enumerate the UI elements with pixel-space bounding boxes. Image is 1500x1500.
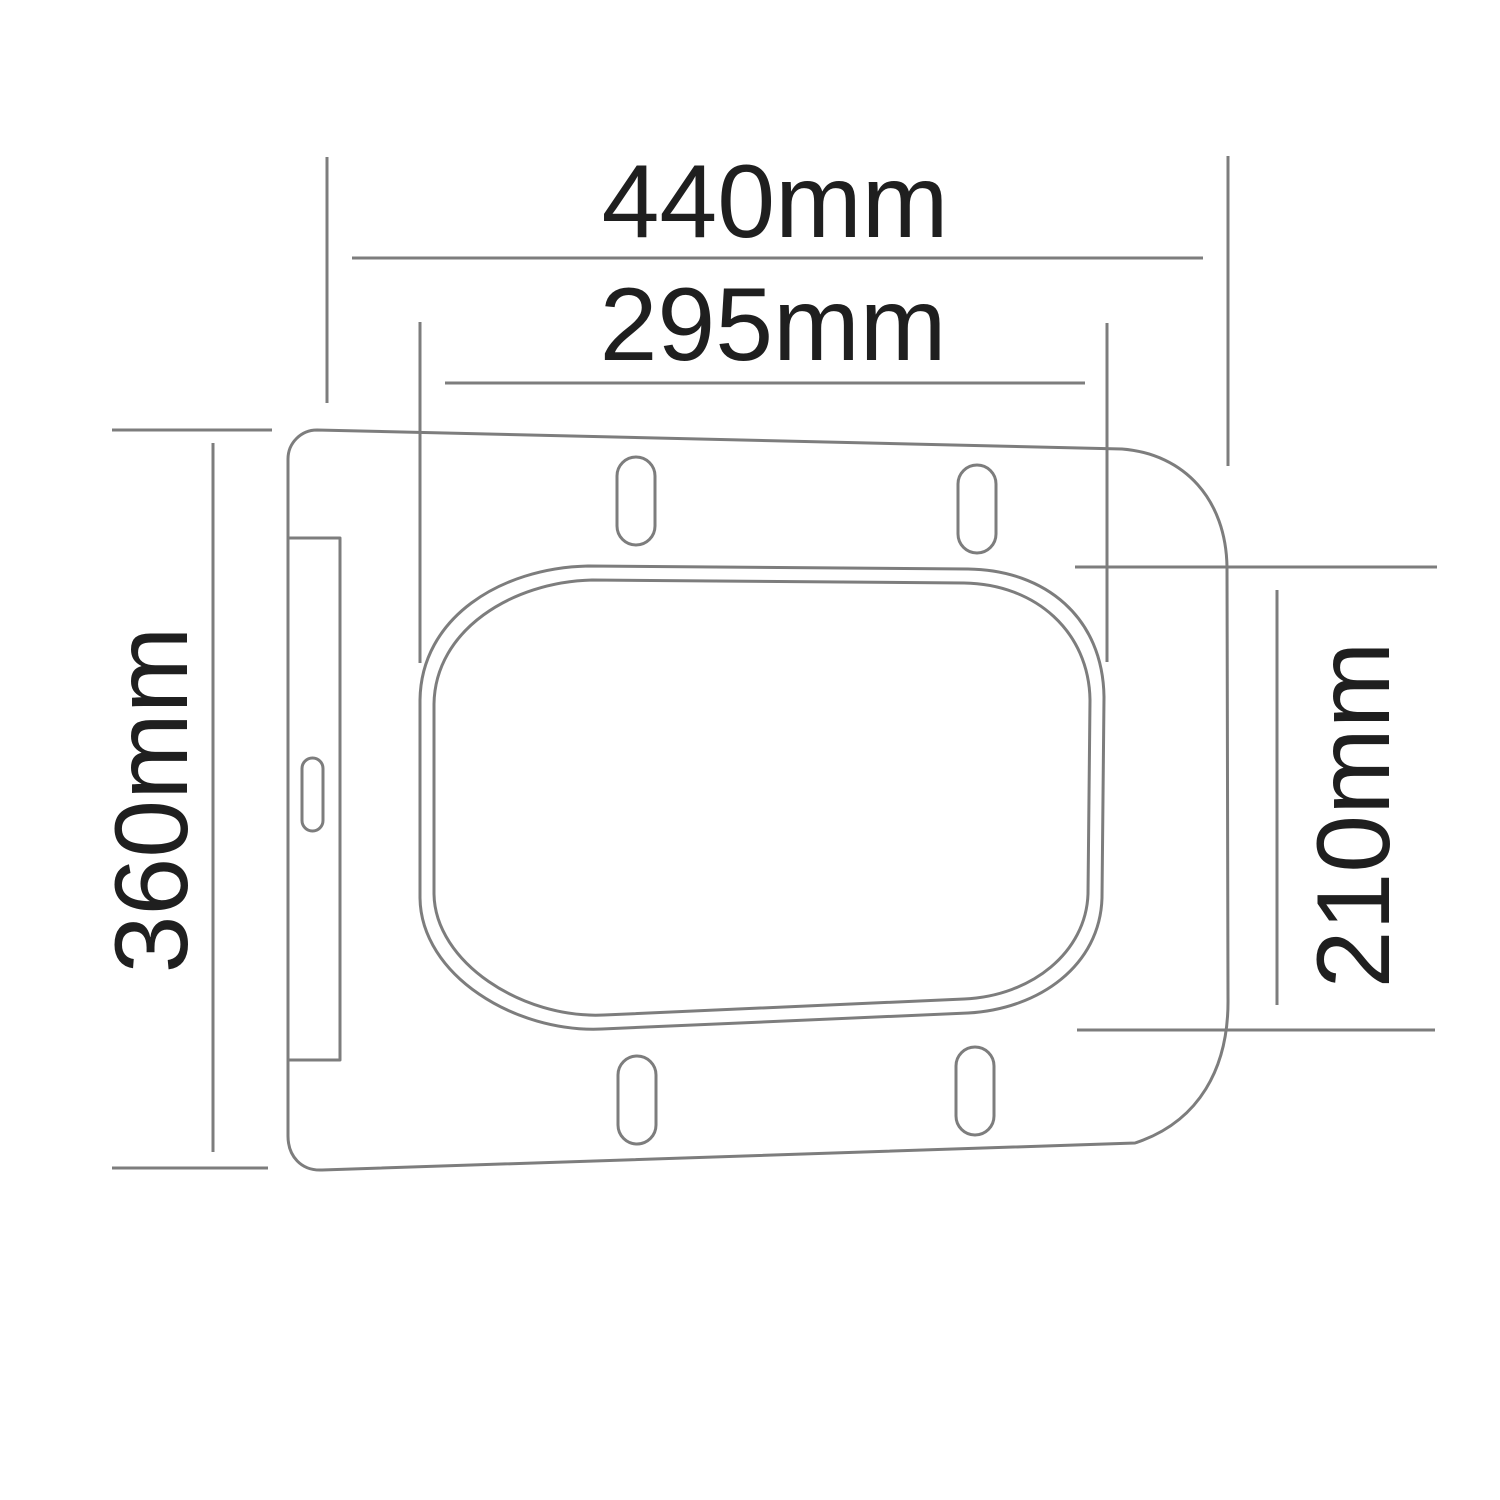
mount-slot-top-right (958, 465, 996, 553)
mount-slot-top-left (617, 457, 655, 545)
toilet-seat-dimension-diagram: 440mm 295mm 360mm 210mm (0, 0, 1500, 1500)
diagram-canvas: 440mm 295mm 360mm 210mm (0, 0, 1500, 1500)
label-opening-width: 295mm (600, 267, 947, 383)
seat-ring-inner-edge (434, 580, 1090, 1015)
seat-outline-group (288, 430, 1228, 1170)
hinge-plate-outline (288, 538, 340, 1060)
label-overall-depth: 360mm (94, 627, 210, 974)
seat-outer-outline (288, 430, 1228, 1170)
mount-slot-bottom-right (956, 1047, 994, 1135)
seat-ring-outer-edge (420, 566, 1104, 1029)
mount-slot-bottom-left (618, 1056, 656, 1144)
hinge-slot (302, 758, 323, 831)
label-overall-width: 440mm (602, 144, 949, 260)
label-opening-depth: 210mm (1296, 642, 1412, 989)
